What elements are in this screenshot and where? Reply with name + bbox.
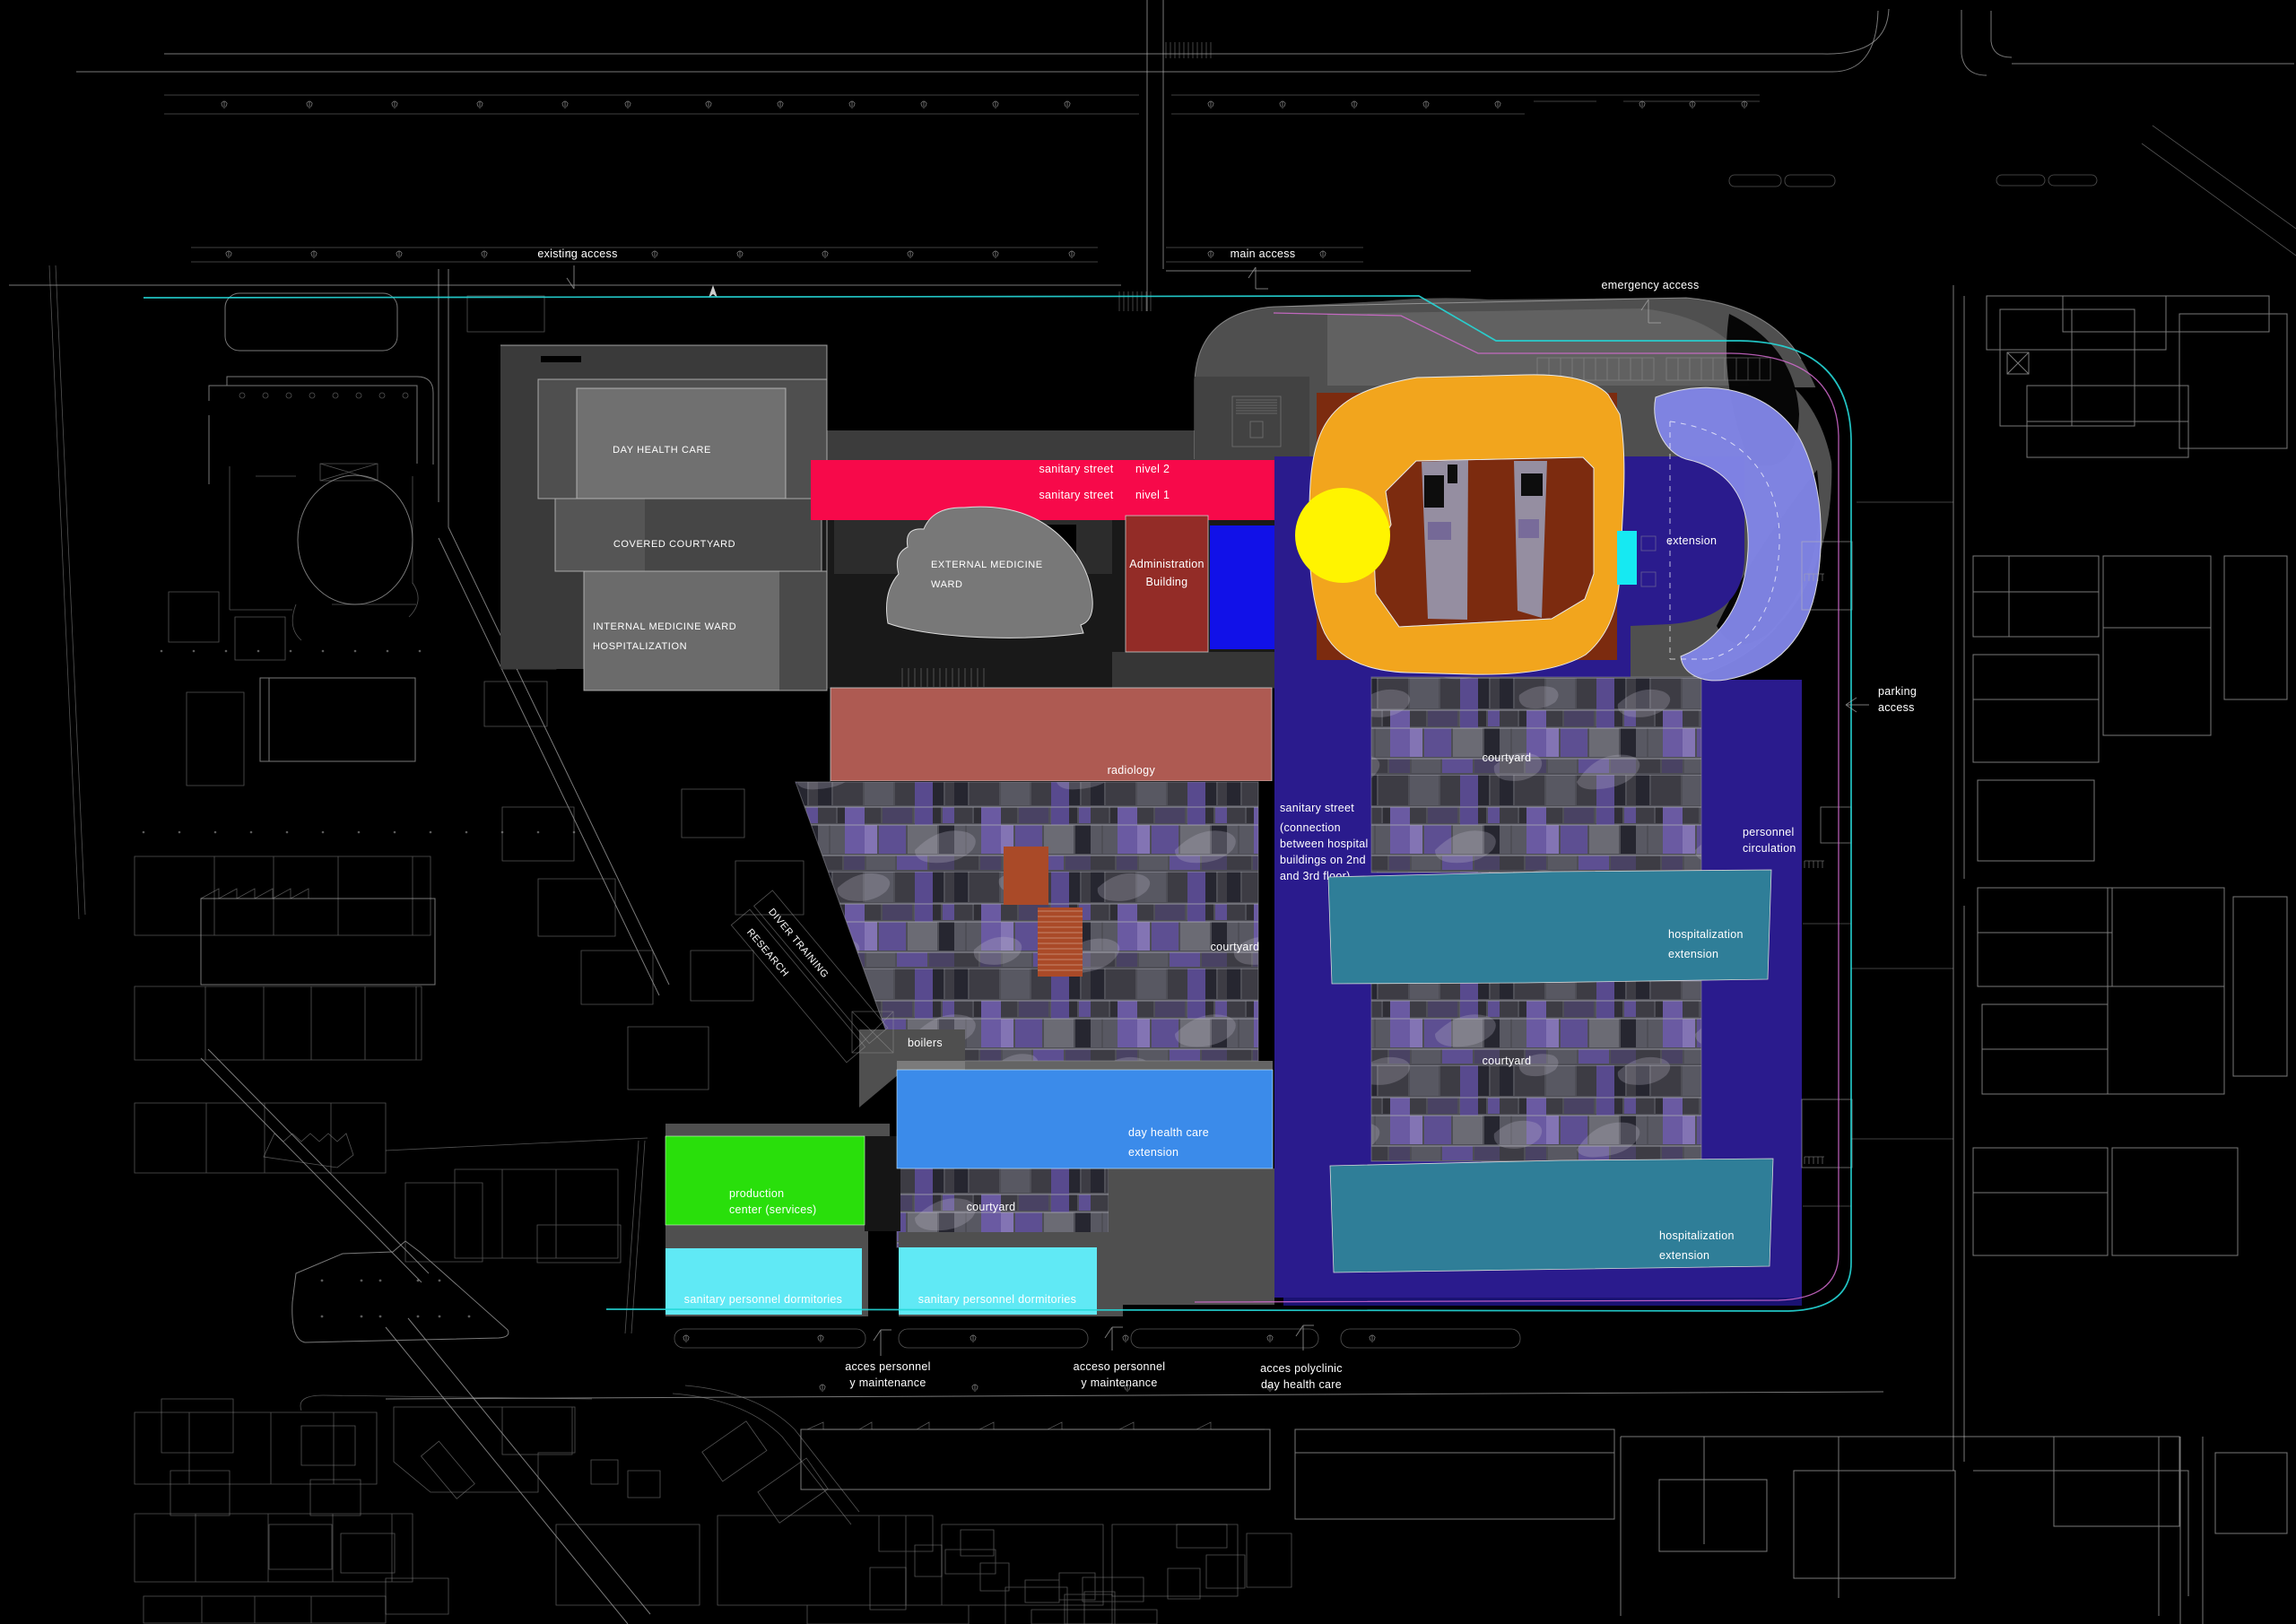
- svg-text:center (services): center (services): [729, 1203, 816, 1216]
- svg-text:sanitary street: sanitary street: [1039, 489, 1113, 501]
- svg-text:between hospital: between hospital: [1280, 838, 1369, 850]
- svg-text:buildings on 2nd: buildings on 2nd: [1280, 854, 1366, 866]
- svg-text:extension: extension: [1666, 534, 1717, 547]
- svg-text:radiology: radiology: [1108, 764, 1156, 777]
- svg-text:emergency access: emergency access: [1601, 279, 1699, 291]
- svg-text:boilers: boilers: [908, 1037, 943, 1049]
- svg-text:WARD: WARD: [931, 579, 963, 590]
- svg-text:extension: extension: [1659, 1249, 1709, 1262]
- svg-text:sanitary street: sanitary street: [1039, 463, 1113, 475]
- svg-text:courtyard: courtyard: [967, 1201, 1016, 1213]
- svg-text:INTERNAL MEDICINE WARD: INTERNAL MEDICINE WARD: [593, 621, 736, 632]
- svg-text:extension: extension: [1128, 1146, 1178, 1159]
- svg-text:existing access: existing access: [537, 248, 617, 260]
- svg-text:nivel 2: nivel 2: [1135, 463, 1170, 475]
- svg-text:DAY HEALTH CARE: DAY HEALTH CARE: [613, 445, 711, 456]
- svg-text:courtyard: courtyard: [1211, 941, 1260, 953]
- svg-text:acces personnel: acces personnel: [845, 1360, 931, 1373]
- svg-text:circulation: circulation: [1743, 842, 1796, 855]
- svg-text:HOSPITALIZATION: HOSPITALIZATION: [593, 641, 687, 652]
- svg-text:acces polyclinic: acces polyclinic: [1260, 1362, 1343, 1375]
- svg-text:courtyard: courtyard: [1483, 751, 1532, 764]
- svg-text:COVERED COURTYARD: COVERED COURTYARD: [613, 539, 735, 550]
- svg-text:courtyard: courtyard: [1483, 1055, 1532, 1067]
- svg-text:day health care: day health care: [1128, 1126, 1209, 1139]
- svg-text:hospitalization: hospitalization: [1659, 1229, 1735, 1242]
- svg-text:y maintenance: y maintenance: [1081, 1376, 1157, 1389]
- svg-text:y maintenance: y maintenance: [849, 1376, 926, 1389]
- svg-text:hospitalization: hospitalization: [1668, 928, 1744, 941]
- svg-text:sanitary personnel dormitories: sanitary personnel dormitories: [918, 1293, 1076, 1306]
- svg-text:day health care: day health care: [1261, 1378, 1342, 1391]
- svg-text:personnel: personnel: [1743, 826, 1795, 838]
- svg-text:access: access: [1878, 701, 1915, 714]
- svg-text:acceso personnel: acceso personnel: [1074, 1360, 1166, 1373]
- svg-text:Building: Building: [1146, 576, 1188, 588]
- svg-text:nivel 1: nivel 1: [1135, 489, 1170, 501]
- svg-text:extension: extension: [1668, 948, 1718, 960]
- svg-text:production: production: [729, 1187, 784, 1200]
- svg-text:Administration: Administration: [1129, 558, 1204, 570]
- svg-text:EXTERNAL MEDICINE: EXTERNAL MEDICINE: [931, 560, 1043, 570]
- svg-text:sanitary personnel dormitories: sanitary personnel dormitories: [684, 1293, 842, 1306]
- svg-text:sanitary street: sanitary street: [1280, 802, 1354, 814]
- svg-text:parking: parking: [1878, 685, 1917, 698]
- svg-text:main access: main access: [1231, 248, 1296, 260]
- svg-text:(connection: (connection: [1280, 821, 1341, 834]
